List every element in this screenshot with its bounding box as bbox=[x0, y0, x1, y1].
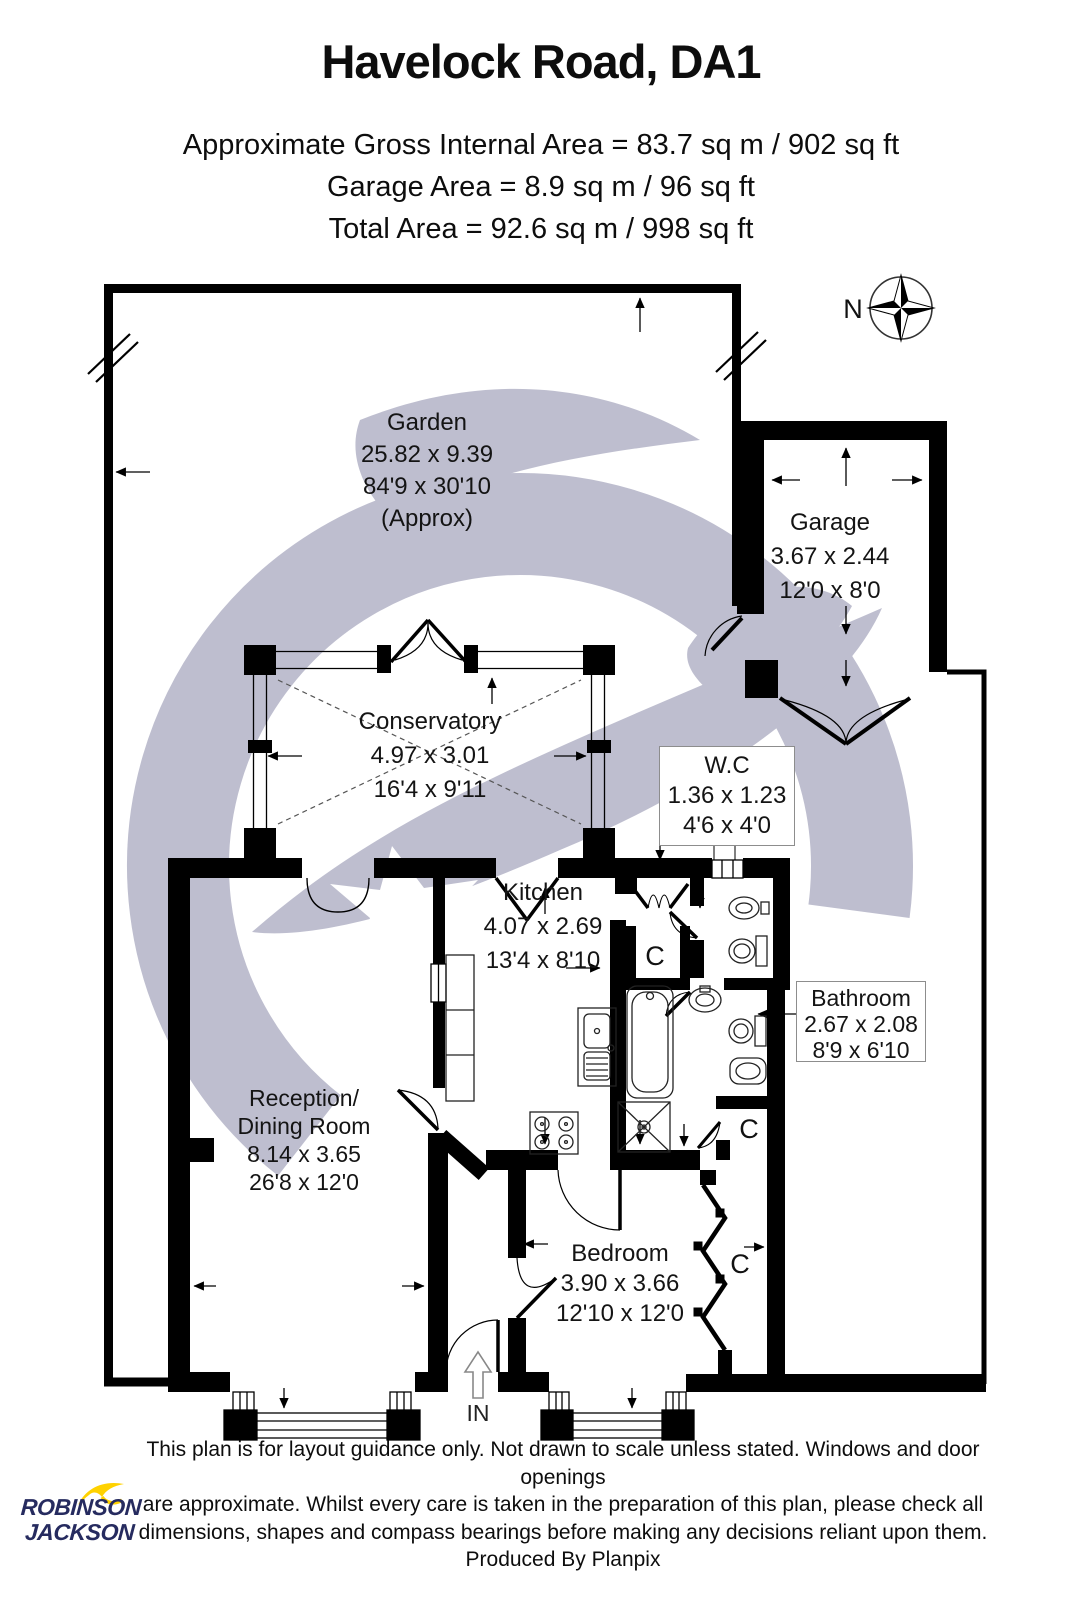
garden-label: Garden 25.82 x 9.39 84'9 x 30'10 (Approx… bbox=[361, 407, 493, 535]
compass-north-label: N bbox=[843, 294, 863, 325]
garage-label: Garage 3.67 x 2.44 12'0 x 8'0 bbox=[771, 506, 890, 608]
conservatory-label: Conservatory 4.97 x 3.01 16'4 x 9'11 bbox=[359, 705, 502, 807]
bidet bbox=[730, 1058, 766, 1084]
wc-label: W.C 1.36 x 1.23 4'6 x 4'0 bbox=[659, 746, 795, 846]
cupboard-marker-bedroom: C bbox=[730, 1249, 750, 1280]
kitchen-label: Kitchen 4.07 x 2.69 13'4 x 8'10 bbox=[484, 876, 603, 978]
entrance-in-label: IN bbox=[467, 1400, 490, 1427]
compass-icon bbox=[868, 275, 934, 341]
bath-tub bbox=[627, 986, 673, 1098]
area-summary: Approximate Gross Internal Area = 83.7 s… bbox=[0, 124, 1082, 250]
gross-internal-area: Approximate Gross Internal Area = 83.7 s… bbox=[0, 124, 1082, 166]
bedroom-label: Bedroom 3.90 x 3.66 12'10 x 12'0 bbox=[556, 1239, 684, 1329]
floorplan-page: Havelock Road, DA1 Approximate Gross Int… bbox=[0, 0, 1082, 1600]
cooker-hob bbox=[530, 1112, 578, 1154]
reception-label: Reception/ Dining Room 8.14 x 3.65 26'8 … bbox=[238, 1084, 371, 1196]
wc-basin bbox=[729, 897, 769, 919]
wc-toilet bbox=[729, 936, 767, 966]
disclaimer-text: This plan is for layout guidance only. N… bbox=[118, 1436, 1008, 1574]
total-area: Total Area = 92.6 sq m / 998 sq ft bbox=[0, 208, 1082, 250]
page-title: Havelock Road, DA1 bbox=[0, 34, 1082, 89]
kitchen-counter bbox=[446, 955, 474, 1101]
bathroom-toilet bbox=[729, 1016, 766, 1046]
bathroom-basin bbox=[689, 986, 721, 1012]
cupboard-marker-closet: C bbox=[739, 1114, 759, 1145]
cupboard-marker-hall: C bbox=[645, 941, 665, 972]
entrance-arrow-icon bbox=[465, 1352, 491, 1398]
bathroom-label: Bathroom 2.67 x 2.08 8'9 x 6'10 bbox=[796, 981, 926, 1062]
garage-area: Garage Area = 8.9 sq m / 96 sq ft bbox=[0, 166, 1082, 208]
